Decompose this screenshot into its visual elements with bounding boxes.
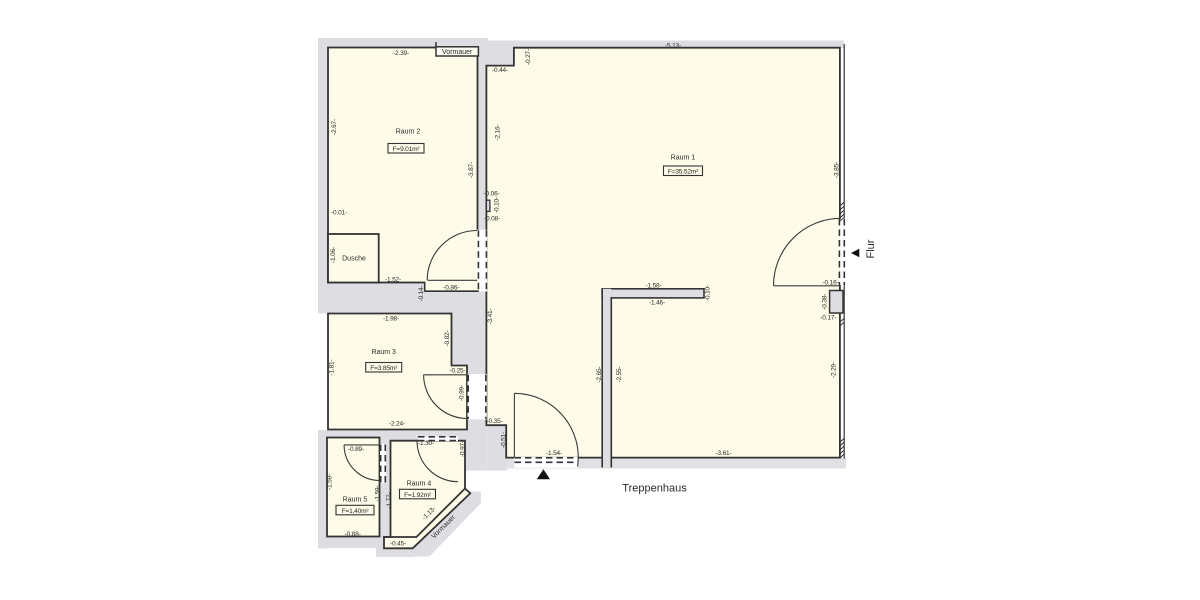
svg-text:-2.55-: -2.55- — [616, 366, 623, 382]
svg-text:-0.08-: -0.08- — [484, 215, 500, 222]
svg-text:-0.86-: -0.86- — [443, 285, 459, 292]
svg-text:-0.38-: -0.38- — [822, 294, 829, 310]
svg-text:-0.01-: -0.01- — [331, 209, 347, 216]
svg-text:-0.35-: -0.35- — [487, 418, 503, 425]
svg-text:-1.06-: -1.06- — [330, 247, 337, 263]
svg-text:-1.46-: -1.46- — [649, 299, 665, 306]
svg-text:-3.85-: -3.85- — [833, 162, 840, 178]
svg-text:-0.25-: -0.25- — [449, 367, 465, 374]
svg-text:Vormauer: Vormauer — [442, 49, 473, 56]
svg-text:-1.30-: -1.30- — [418, 440, 434, 447]
svg-text:-1.77-: -1.77- — [386, 492, 393, 508]
svg-text:-0.10-: -0.10- — [493, 197, 500, 213]
svg-text:-1.52-: -1.52- — [385, 276, 401, 283]
svg-text:-1.81-: -1.81- — [328, 359, 335, 375]
svg-text:Treppenhaus: Treppenhaus — [622, 483, 687, 495]
svg-text:-0.27-: -0.27- — [525, 49, 532, 65]
svg-text:Raum 4: Raum 4 — [407, 481, 432, 488]
svg-text:-2.39-: -2.39- — [393, 50, 409, 57]
svg-text:F=35.52m²: F=35.52m² — [668, 168, 699, 175]
svg-text:Raum 2: Raum 2 — [396, 129, 421, 136]
svg-text:-0.99-: -0.99- — [458, 385, 465, 401]
svg-text:Raum 3: Raum 3 — [371, 349, 396, 356]
svg-text:-1.59-: -1.59- — [374, 485, 381, 501]
svg-text:-0.17-: -0.17- — [820, 315, 836, 322]
svg-text:-2.67-: -2.67- — [331, 119, 338, 135]
svg-text:-0.45-: -0.45- — [390, 541, 406, 548]
svg-text:-0.14-: -0.14- — [418, 285, 425, 301]
svg-text:F=1.40m²: F=1.40m² — [342, 508, 370, 515]
svg-text:F=1.92m²: F=1.92m² — [404, 492, 432, 499]
svg-text:-0.06-: -0.06- — [484, 190, 500, 197]
svg-text:-1.54-: -1.54- — [546, 450, 562, 457]
svg-text:Raum 5: Raum 5 — [343, 497, 368, 504]
svg-text:-0.82-: -0.82- — [444, 330, 451, 346]
svg-text:-0.97-: -0.97- — [459, 441, 466, 457]
svg-text:-1.58-: -1.58- — [645, 283, 661, 290]
svg-text:Raum 1: Raum 1 — [671, 154, 696, 161]
svg-text:F=9.01m²: F=9.01m² — [393, 146, 421, 153]
svg-text:-2.65-: -2.65- — [596, 366, 603, 382]
svg-text:-0.89-: -0.89- — [348, 446, 364, 453]
svg-text:-1.59-: -1.59- — [326, 474, 333, 490]
svg-text:-0.10-: -0.10- — [704, 285, 711, 301]
svg-text:-2.24-: -2.24- — [389, 420, 405, 427]
svg-text:-5.13-: -5.13- — [665, 43, 681, 50]
svg-text:Flur: Flur — [865, 239, 877, 258]
svg-text:-1.98-: -1.98- — [383, 316, 399, 323]
svg-text:-0.51-: -0.51- — [500, 432, 507, 448]
svg-text:F=3.85m²: F=3.85m² — [370, 365, 398, 372]
svg-text:Dusche: Dusche — [342, 255, 366, 262]
svg-text:-3.87-: -3.87- — [468, 162, 475, 178]
svg-text:-3.61-: -3.61- — [715, 450, 731, 457]
svg-text:-3.41-: -3.41- — [487, 308, 494, 324]
svg-text:-0.88-: -0.88- — [345, 531, 361, 538]
svg-text:-2.16-: -2.16- — [494, 124, 501, 140]
svg-text:-0.16-: -0.16- — [823, 280, 839, 287]
svg-text:-0.44-: -0.44- — [492, 67, 508, 74]
svg-text:-2.29-: -2.29- — [830, 362, 837, 378]
